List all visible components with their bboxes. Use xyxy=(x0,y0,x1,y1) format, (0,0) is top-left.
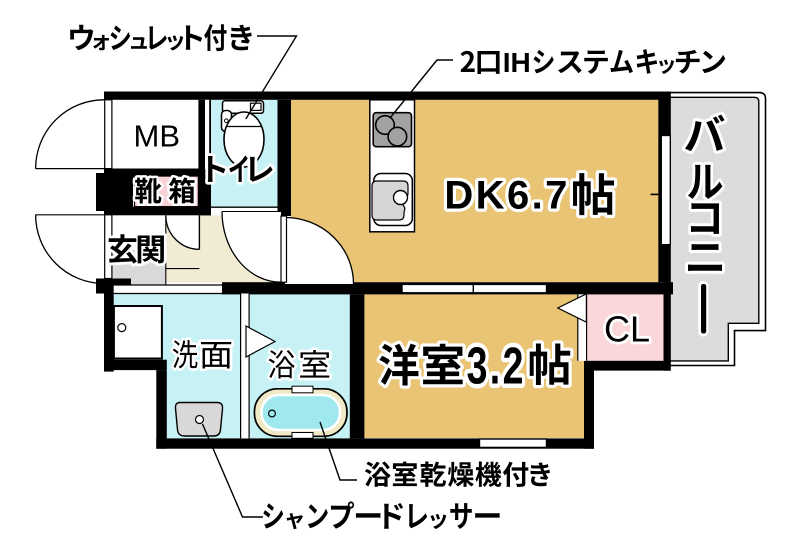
svg-text:MB: MB xyxy=(134,118,181,153)
svg-text:CL: CL xyxy=(604,308,650,349)
svg-text:IH: IH xyxy=(503,47,531,78)
svg-text:DK6.7: DK6.7 xyxy=(444,174,569,218)
svg-text:3.2: 3.2 xyxy=(467,336,526,395)
